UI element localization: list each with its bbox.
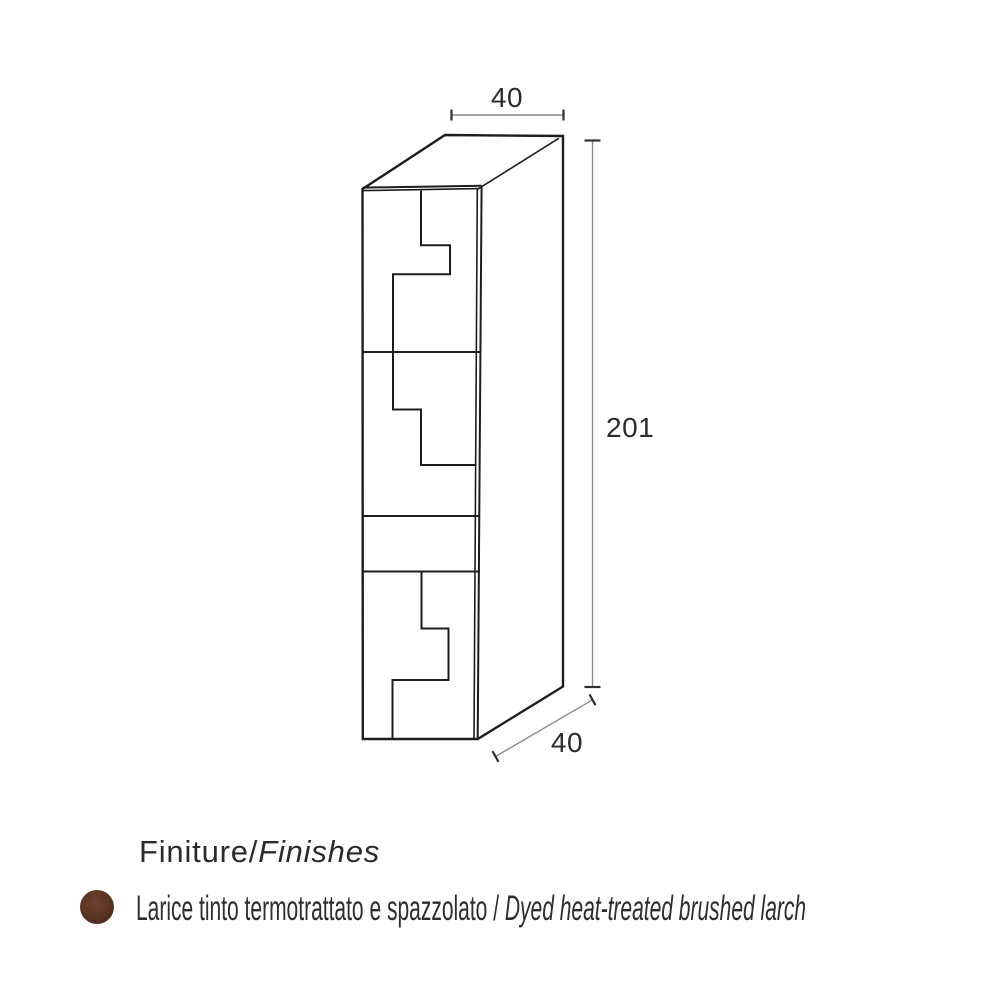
finishes-heading-italian: Finiture xyxy=(139,834,249,869)
finish-item-label: Larice tinto termotrattato e spazzolato … xyxy=(136,891,806,927)
cabinet-door-split-bottom xyxy=(393,572,449,740)
finish-name-separator: / xyxy=(487,889,505,928)
depth-dimension-tick-right xyxy=(590,694,596,705)
finish-name-italian: Larice tinto termotrattato e spazzolato xyxy=(136,889,487,928)
product-spec-sheet: 40 201 40 Finiture/Finishes Larice tinto… xyxy=(0,0,1000,1000)
finish-color-swatch xyxy=(80,890,114,924)
cabinet-right-outer-edge xyxy=(478,186,482,739)
finishes-heading-english: Finishes xyxy=(258,834,380,869)
height-dimension-label: 201 xyxy=(606,412,654,443)
cabinet-top-right-inner-diagonal xyxy=(477,138,559,189)
depth-dimension-tick-left xyxy=(493,751,499,762)
finishes-heading-separator: / xyxy=(249,834,258,869)
width-dimension-label: 40 xyxy=(491,82,523,113)
cabinet-top-front-inner-edge xyxy=(363,189,479,191)
cabinet-silhouette xyxy=(363,135,564,739)
cabinet-door-split-middle xyxy=(393,352,476,465)
cabinet-top-front-edge xyxy=(363,186,482,188)
finish-name-english: Dyed heat-treated brushed larch xyxy=(505,889,806,928)
finishes-heading: Finiture/Finishes xyxy=(139,834,380,870)
depth-dimension-label: 40 xyxy=(551,727,583,758)
cabinet-door-split-top xyxy=(393,191,450,352)
